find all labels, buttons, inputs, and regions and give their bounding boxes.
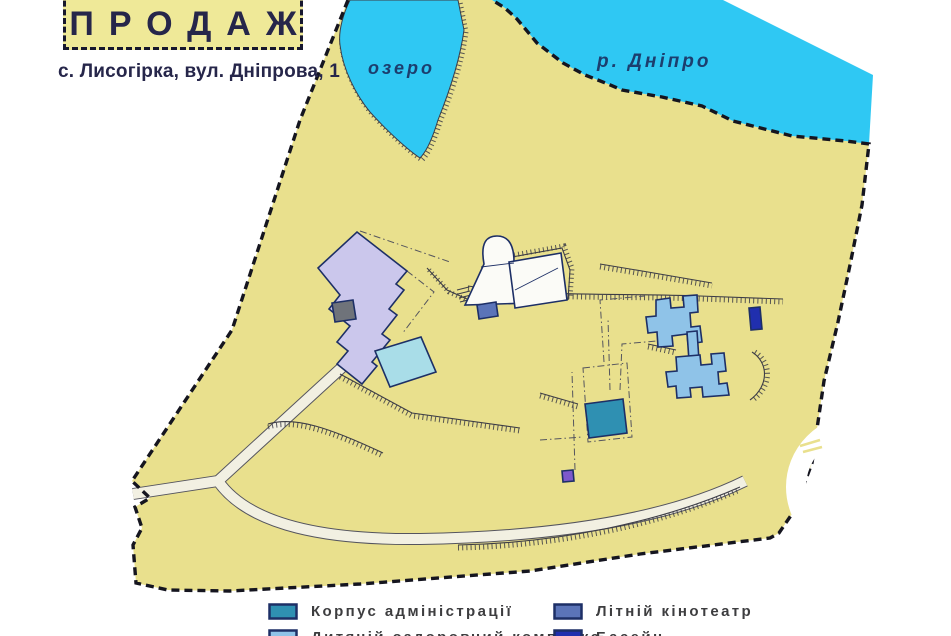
building-purple <box>562 470 574 482</box>
site-plan-map: озеро р. Дніпро <box>0 0 951 636</box>
lake-label: озеро <box>368 58 435 78</box>
legend-row-1: Корпус адміністрації Літній кінотеатр <box>268 603 513 620</box>
building-pool <box>749 307 762 330</box>
building-administration <box>585 399 627 438</box>
legend-label: Басейн <box>596 629 665 636</box>
legend-label: Корпус адміністрації <box>311 603 513 620</box>
legend-swatch-children-complex <box>268 629 298 636</box>
site-plan-page: озеро р. Дніпро ПРОДАЖ с. Лисогірка, вул… <box>0 0 951 636</box>
legend-swatch-administration <box>268 603 298 620</box>
building-white-annex <box>509 253 567 308</box>
legend-row-2: Дитячій оздоровчий комплекс Басейн <box>268 629 601 636</box>
legend-item-pool: Басейн <box>553 629 665 636</box>
legend-item-cinema: Літній кінотеатр <box>553 603 753 620</box>
page-title: ПРОДАЖ <box>54 7 311 41</box>
building-gray <box>332 300 356 322</box>
watermark-circle <box>796 425 920 549</box>
legend-item-children-complex: Дитячій оздоровчий комплекс <box>268 629 601 636</box>
building-summer-cinema <box>477 302 498 319</box>
address-subtitle: с. Лисогірка, вул. Дніпрова, 1 <box>58 61 314 83</box>
legend-swatch-cinema <box>553 603 583 620</box>
legend-item-administration: Корпус адміністрації <box>268 603 513 620</box>
title-box: ПРОДАЖ <box>63 0 303 50</box>
river-label: р. Дніпро <box>596 51 711 72</box>
legend-label: Літній кінотеатр <box>596 603 753 620</box>
legend-swatch-pool <box>553 629 583 636</box>
